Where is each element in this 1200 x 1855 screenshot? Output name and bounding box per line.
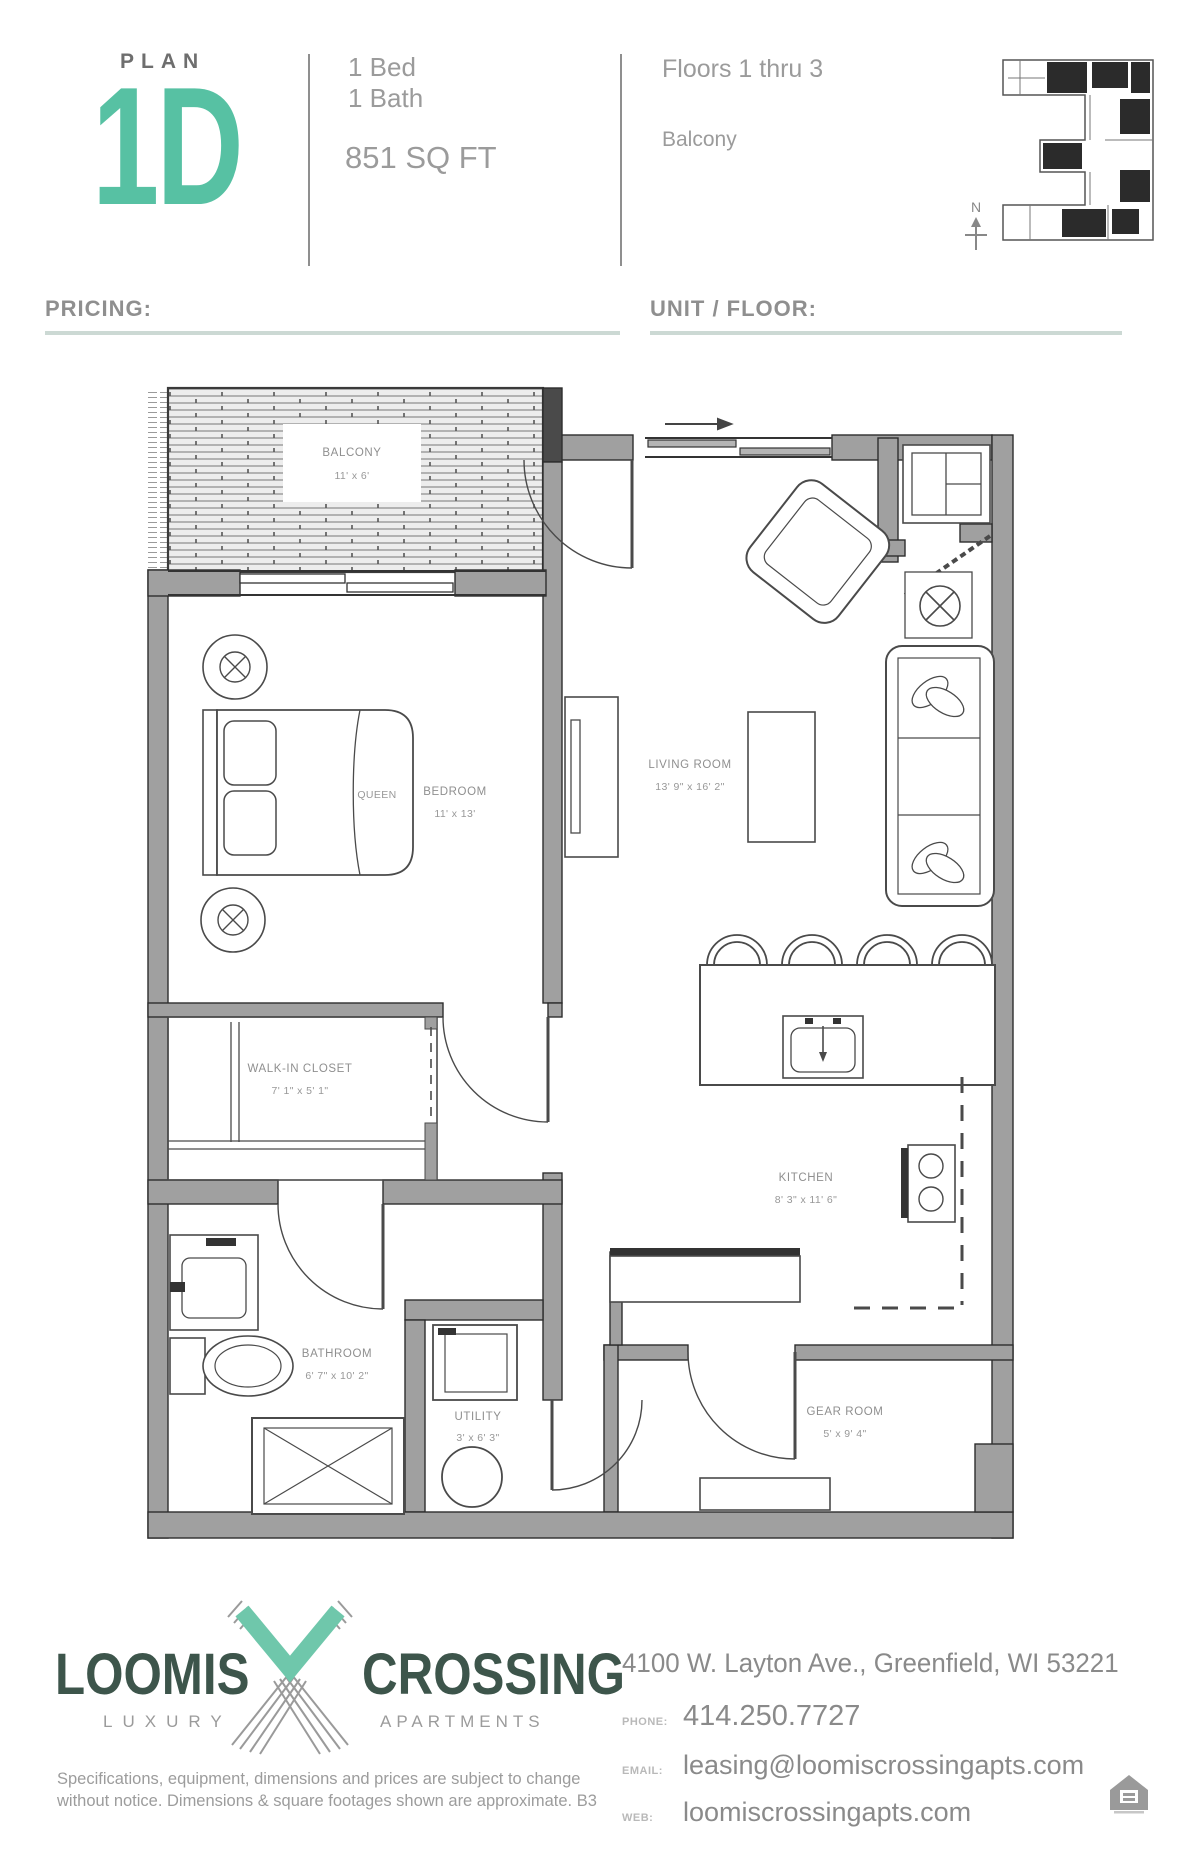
- island-sink: [783, 1016, 863, 1078]
- logo-sub-luxury: LUXURY: [103, 1712, 232, 1732]
- room-dims-closet: 7' 1" x 5' 1": [272, 1085, 329, 1097]
- tv-console: [565, 697, 618, 857]
- dryer: [442, 1447, 502, 1507]
- floorplan-flyer: PLAN 1D 1 Bed 1 Bath 851 SQ FT Floors 1 …: [0, 0, 1200, 1855]
- room-dims-utility: 3' x 6' 3": [456, 1432, 499, 1444]
- logo-x-icon: [220, 1597, 360, 1759]
- walk-in-closet: [168, 1017, 437, 1180]
- range-stove: [901, 1145, 955, 1222]
- room-dims-gear: 5' x 9' 4": [823, 1428, 866, 1440]
- room-dims-kitchen: 8' 3" x 11' 6": [775, 1194, 837, 1206]
- balcony: BALCONY 11' x 6': [148, 388, 543, 572]
- email-value: leasing@loomiscrossingapts.com: [683, 1750, 1084, 1781]
- email-label: EMAIL:: [622, 1765, 663, 1777]
- floorplan-drawing: N BALCONY 11' x 6': [0, 0, 1200, 1855]
- washer: [433, 1325, 517, 1400]
- room-dims-bedroom: 11' x 13': [434, 808, 475, 820]
- bedroom-door: [443, 1017, 548, 1122]
- phone-label: PHONE:: [622, 1716, 668, 1728]
- logo-sub-apartments: APARTMENTS: [380, 1712, 545, 1732]
- round-table-bottom: [201, 888, 265, 952]
- armchair: [739, 473, 896, 630]
- media-niche-cabinet: [903, 445, 990, 523]
- disclaimer-line-2: without notice. Dimensions & square foot…: [57, 1790, 597, 1812]
- mechanical-corner-fan: [905, 536, 990, 638]
- living-room-furniture: [565, 445, 994, 906]
- disclaimer: Specifications, equipment, dimensions an…: [57, 1768, 597, 1813]
- web-label: WEB:: [622, 1812, 653, 1824]
- kitchen-counter: [610, 1248, 800, 1302]
- room-label-gear: GEAR ROOM: [807, 1406, 884, 1418]
- coffee-table: [748, 712, 815, 842]
- room-label-living: LIVING ROOM: [648, 759, 731, 771]
- bathroom-door: [278, 1204, 383, 1309]
- balcony-label-box: [283, 424, 421, 502]
- sofa: [886, 646, 994, 906]
- bathroom-fixtures: [170, 1235, 404, 1514]
- round-table-top: [203, 635, 267, 699]
- room-dims-balcony: 11' x 6': [334, 470, 369, 482]
- logo-name-crossing: CROSSING: [362, 1646, 625, 1704]
- room-label-utility: UTILITY: [454, 1411, 501, 1423]
- kitchen-fixtures: [610, 935, 995, 1308]
- gear-room-bench: [700, 1478, 830, 1510]
- gear-room-door: [688, 1352, 795, 1459]
- compass-n: N: [971, 199, 981, 215]
- north-compass-icon: N: [965, 199, 987, 250]
- room-label-bathroom: BATHROOM: [302, 1348, 372, 1360]
- site-key-map: [1003, 60, 1153, 240]
- toilet: [170, 1336, 293, 1396]
- web-value: loomiscrossingapts.com: [683, 1797, 971, 1828]
- phone-value: 414.250.7727: [683, 1700, 860, 1733]
- address: 4100 W. Layton Ave., Greenfield, WI 5322…: [622, 1648, 1119, 1679]
- room-dims-bathroom: 6' 7" x 10' 2": [305, 1370, 368, 1382]
- room-label-bedroom: BEDROOM: [423, 786, 487, 798]
- bed-size-label: QUEEN: [357, 789, 396, 801]
- utility-door: [552, 1400, 642, 1490]
- entry-arrow-icon: [665, 419, 731, 429]
- bar-stools: [707, 935, 992, 965]
- patio-slider-door: [645, 438, 832, 457]
- vanity-sink: [170, 1235, 258, 1330]
- tub-shower: [252, 1418, 404, 1514]
- equal-housing-icon: [1106, 1770, 1152, 1816]
- room-label-kitchen: KITCHEN: [779, 1172, 834, 1184]
- disclaimer-line-1: Specifications, equipment, dimensions an…: [57, 1768, 597, 1790]
- room-dims-living: 13' 9" x 16' 2": [655, 781, 724, 793]
- room-label-closet: WALK-IN CLOSET: [247, 1063, 352, 1075]
- room-label-balcony: BALCONY: [322, 447, 381, 459]
